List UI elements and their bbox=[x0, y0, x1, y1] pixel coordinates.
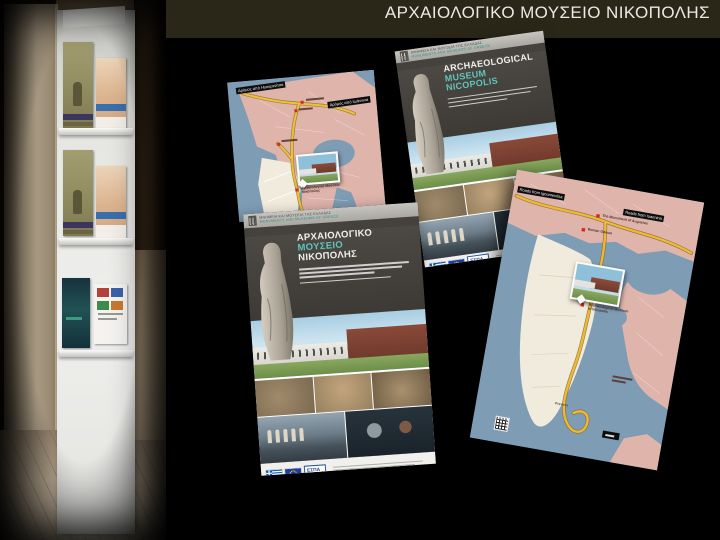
brochure-map-greek: Δρόμος από Ηγουμενίτσα Δρόμος από Ιωάννι… bbox=[227, 70, 386, 222]
olive-leaflet-2 bbox=[63, 150, 93, 236]
ministry-logo-icon bbox=[400, 51, 409, 62]
brochure-stand-photo bbox=[0, 0, 166, 540]
leaflet-band bbox=[63, 222, 93, 228]
stamp-thumb bbox=[111, 301, 123, 310]
leaflet-band bbox=[96, 212, 126, 219]
brochure-title: ΑΡΧΑΙΟΛΟΓΙΚΟ ΜΟΥΣΕΙΟ ΝΙΚΟΠΟΛΗΣ bbox=[297, 226, 416, 264]
museum-photo bbox=[298, 153, 338, 183]
espa-logo: ΕΣΠΑ bbox=[304, 464, 327, 476]
museum-building-low bbox=[299, 168, 316, 174]
espa-logo: ΕΣΠΑ bbox=[467, 253, 491, 267]
shelf-lip bbox=[59, 350, 133, 357]
teal-booklet bbox=[62, 278, 90, 348]
stamp-thumb bbox=[111, 288, 123, 297]
leaflet-stand bbox=[57, 10, 135, 534]
statue-print-icon bbox=[73, 190, 82, 214]
stamp-thumb bbox=[97, 288, 109, 297]
brochure-cover-greek: ΜΝΗΜΕΙΑ ΚΑΙ ΜΟΥΣΕΙΑ ΤΗΣ ΕΛΛΑΔΑΣ MONUMENT… bbox=[243, 202, 436, 476]
eu-flag-icon bbox=[285, 468, 302, 476]
leaflet-band bbox=[63, 114, 93, 120]
statue-print-icon bbox=[73, 82, 82, 106]
artifact-photo bbox=[372, 369, 432, 409]
stamp-thumb bbox=[97, 301, 109, 310]
funding-fine-print bbox=[333, 460, 431, 475]
statue-photo bbox=[249, 239, 301, 364]
shelf-lip bbox=[59, 128, 133, 135]
artifact-photo bbox=[313, 373, 373, 413]
floor-through-door bbox=[132, 250, 166, 440]
slide-title-bar: ΑΡΧΑΙΟΛΟΓΙΚΟ ΜΟΥΣΕΙΟ ΝΙΚΟΠΟΛΗΣ bbox=[166, 0, 720, 38]
map-graphic bbox=[227, 70, 386, 222]
leaflet-band bbox=[63, 122, 93, 126]
fine-print-bar bbox=[333, 470, 390, 475]
slide-background: ΑΡΧΑΙΟΛΟΓΙΚΟ ΜΟΥΣΕΙΟ ΝΙΚΟΠΟΛΗΣ bbox=[0, 0, 720, 540]
leaflet-band bbox=[96, 225, 126, 238]
peach-leaflet-1 bbox=[96, 58, 126, 130]
greek-flag-icon bbox=[266, 469, 283, 476]
peach-leaflet-2 bbox=[96, 166, 126, 238]
greek-flag-icon bbox=[429, 261, 446, 267]
leaflet-band bbox=[63, 230, 93, 234]
busts-photo bbox=[345, 406, 435, 458]
exhibit-hall-photo bbox=[257, 412, 347, 464]
fine-print-bar bbox=[98, 318, 117, 320]
fine-print-bar bbox=[98, 313, 123, 315]
fine-print bbox=[299, 260, 417, 283]
wall-column bbox=[4, 4, 58, 478]
stamp-card bbox=[94, 284, 127, 344]
artifact-photo bbox=[255, 377, 315, 417]
qr-code-icon bbox=[494, 416, 510, 432]
ministry-logo-icon bbox=[248, 216, 257, 227]
slide-title: ΑΡΧΑΙΟΛΟΓΙΚΟ ΜΟΥΣΕΙΟ ΝΙΚΟΠΟΛΗΣ bbox=[385, 3, 710, 23]
eu-flag-icon bbox=[448, 258, 465, 267]
leaflet-band bbox=[96, 104, 126, 111]
door-frame bbox=[134, 0, 166, 260]
olive-leaflet-1 bbox=[63, 42, 93, 128]
shelf-lip bbox=[59, 238, 133, 245]
